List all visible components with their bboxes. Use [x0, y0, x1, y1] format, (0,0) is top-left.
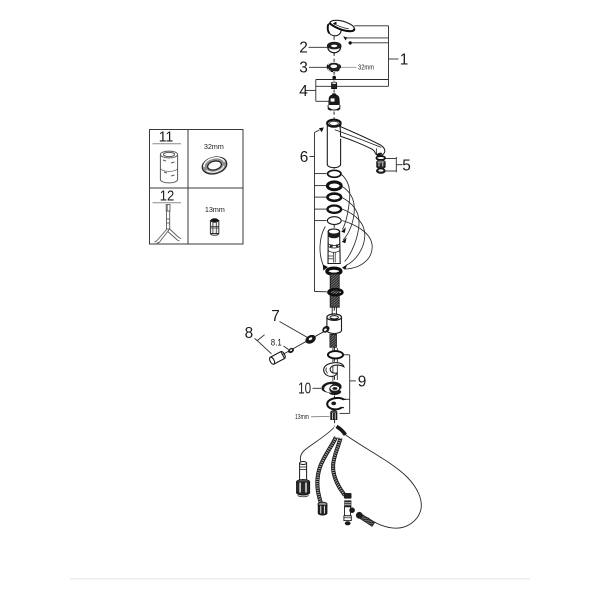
svg-text:32mm: 32mm	[358, 63, 374, 72]
svg-text:7: 7	[271, 308, 280, 325]
svg-text:4: 4	[299, 83, 308, 100]
svg-text:10: 10	[298, 381, 311, 398]
svg-text:5: 5	[402, 157, 411, 174]
svg-text:9: 9	[358, 373, 367, 390]
svg-text:13mm: 13mm	[205, 205, 225, 214]
svg-text:2: 2	[299, 40, 308, 57]
svg-text:6: 6	[300, 149, 309, 166]
svg-text:32mm: 32mm	[204, 142, 224, 151]
svg-text:8.1: 8.1	[271, 337, 282, 347]
svg-text:3: 3	[299, 60, 308, 77]
svg-text:13mm: 13mm	[295, 412, 309, 421]
svg-text:11: 11	[159, 130, 174, 146]
svg-text:1: 1	[400, 52, 409, 69]
svg-text:12: 12	[160, 189, 175, 205]
svg-text:8: 8	[245, 325, 254, 342]
